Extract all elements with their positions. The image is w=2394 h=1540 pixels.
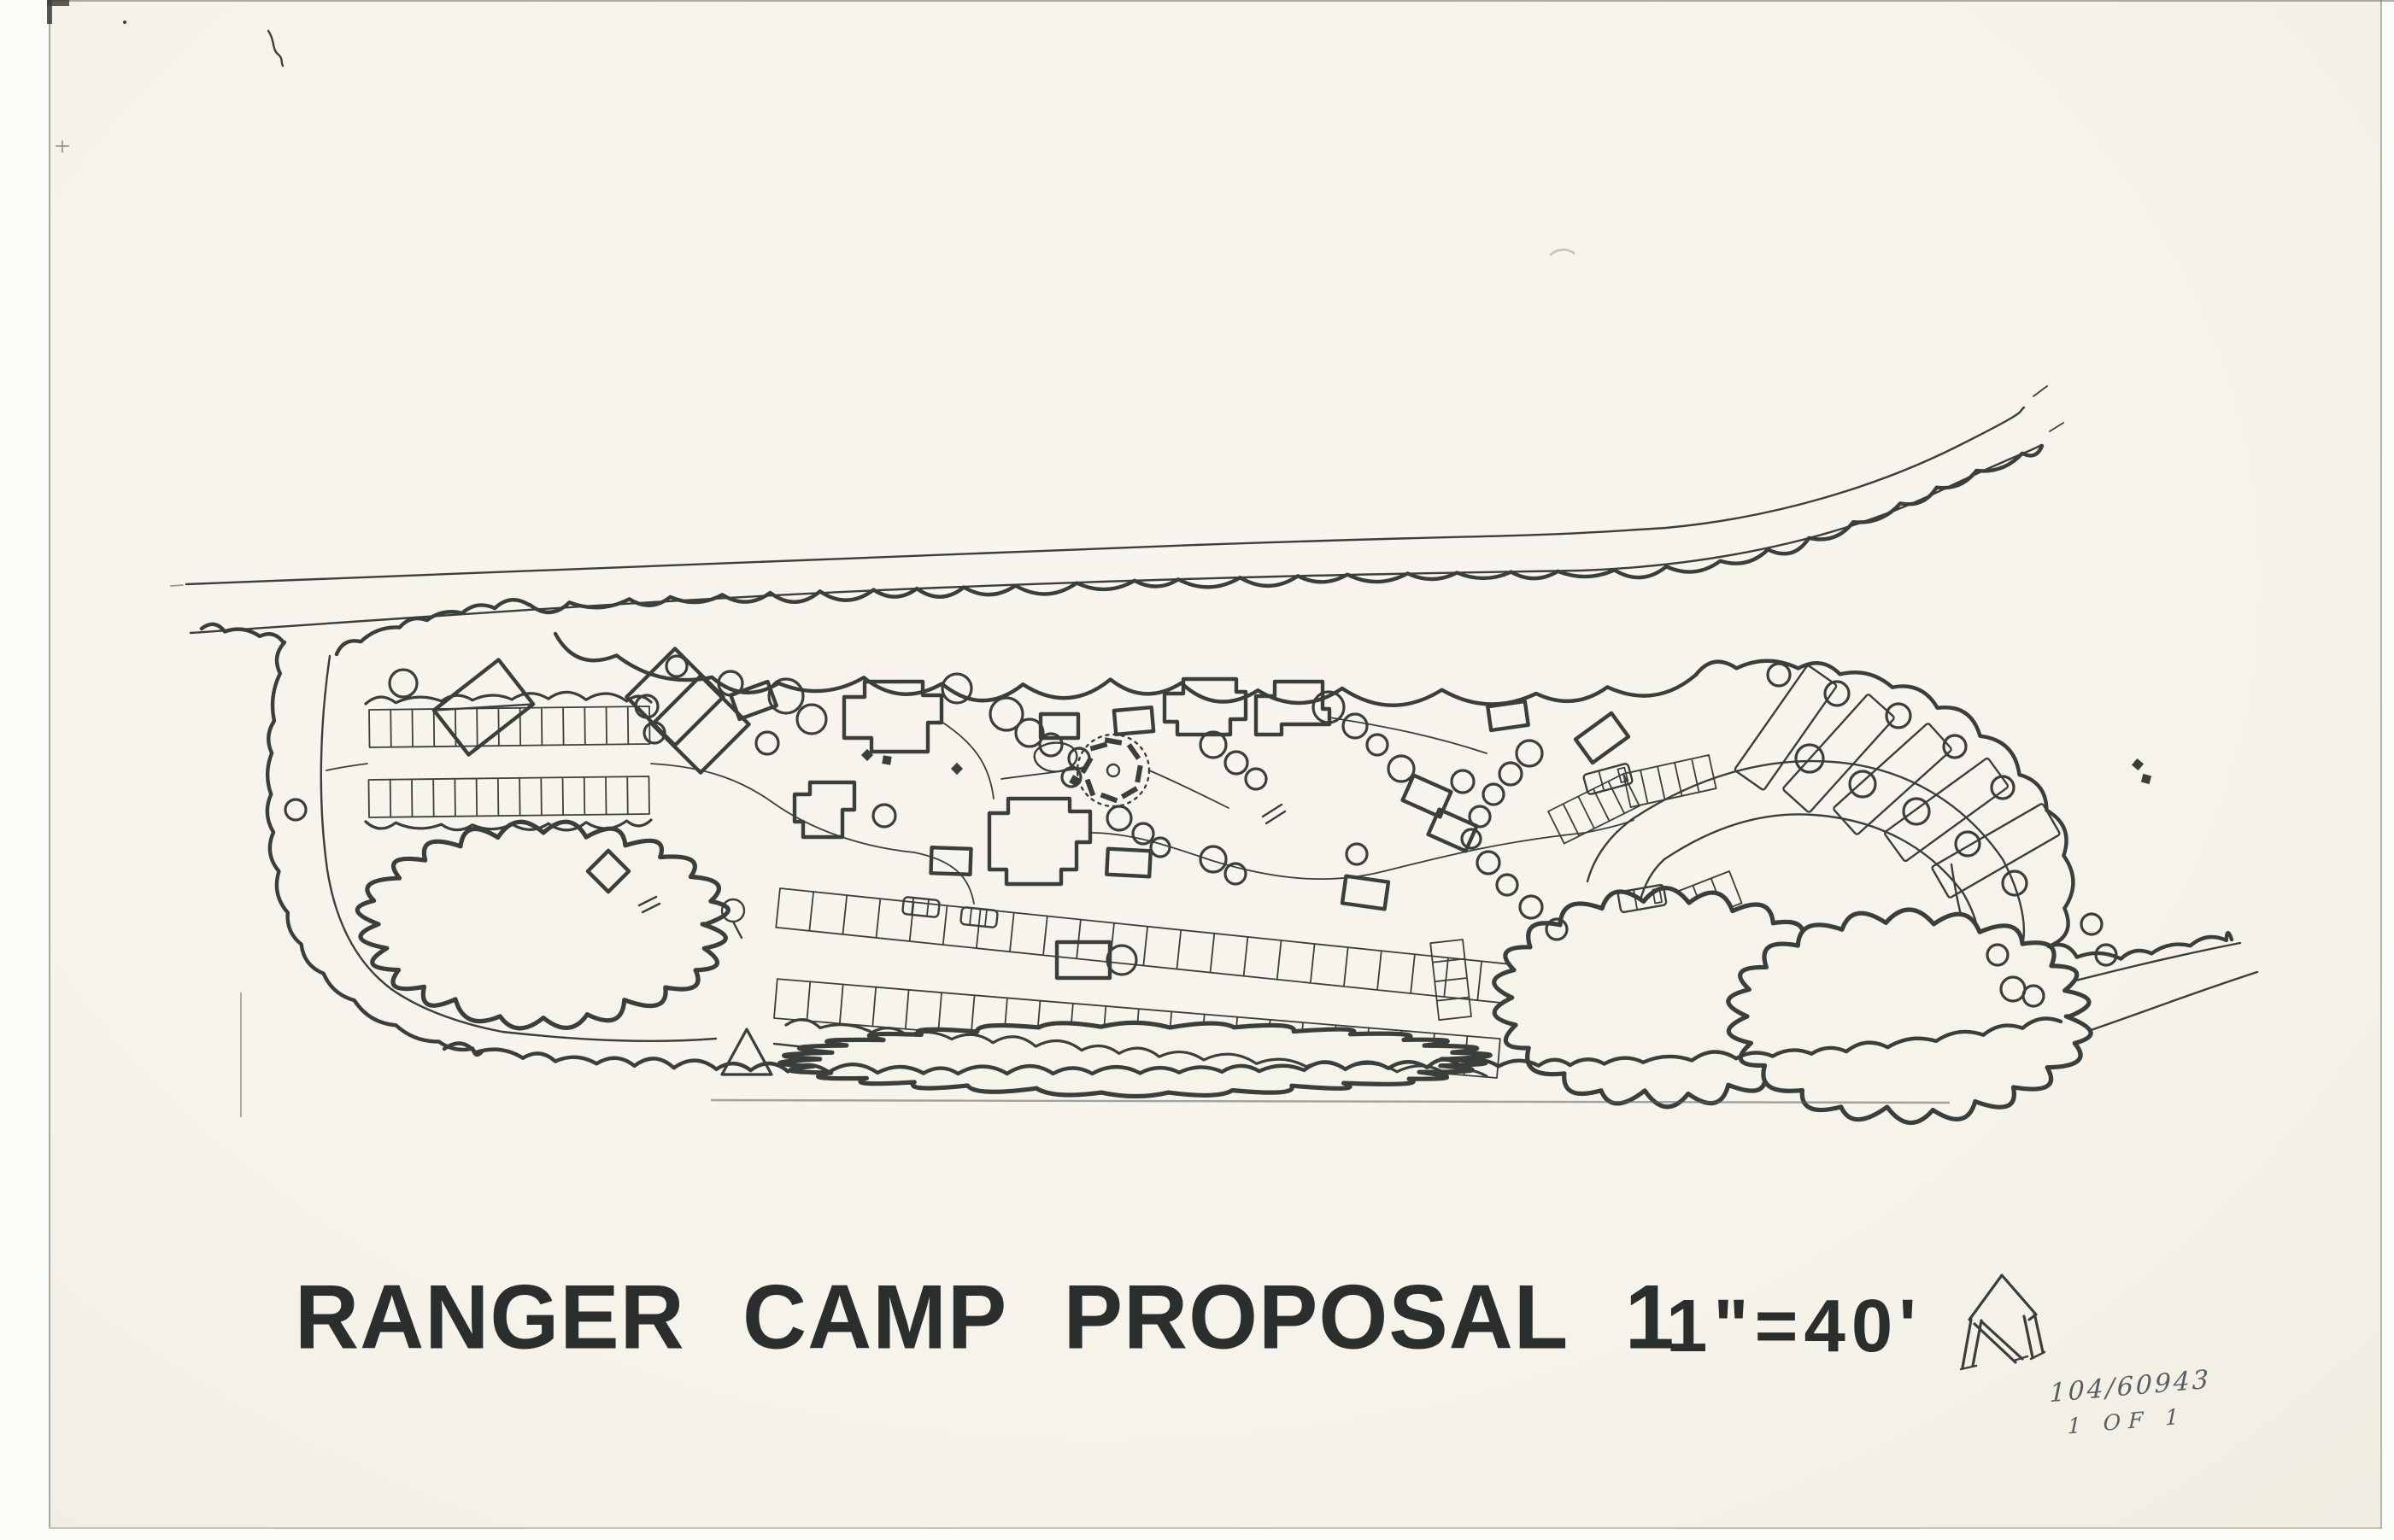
tree-icon	[1904, 799, 1929, 824]
main-road-dash	[2050, 423, 2063, 431]
tree-icon	[1483, 784, 1504, 805]
cabin	[1106, 849, 1151, 877]
title-block: RANGER CAMP PROPOSAL 1	[295, 1272, 1675, 1366]
tree-canopy	[202, 446, 2232, 1123]
tree-icon	[1517, 741, 1542, 766]
picnic-table-icon	[882, 755, 892, 765]
tree-icon	[1497, 875, 1517, 895]
tree-icon	[390, 670, 417, 697]
campfire-ring-icon	[1077, 735, 1149, 806]
picnic-table-icon	[2132, 758, 2144, 770]
page-title: RANGER CAMP PROPOSAL 1	[295, 1272, 1675, 1363]
vehicles	[902, 763, 1667, 928]
footpath	[942, 722, 994, 799]
tree-icon	[1956, 832, 1980, 856]
hall-building	[1256, 682, 1329, 735]
tree-icon	[1499, 763, 1522, 785]
bench-icon	[1263, 805, 1285, 823]
tree-icon	[1944, 735, 1966, 758]
tree-icon	[666, 656, 687, 676]
tree-icon	[756, 732, 778, 754]
cabin	[1487, 701, 1528, 730]
main-road-lower-edge	[191, 445, 2041, 633]
footpath	[1329, 717, 1487, 753]
cabin	[1342, 876, 1388, 910]
tree-icon	[1850, 771, 1875, 797]
upper-parking-south-band	[368, 776, 649, 817]
tree-icon	[2081, 914, 2102, 934]
tree-icon	[1477, 852, 1499, 874]
scale-label: 1"=40'	[1666, 1289, 1922, 1363]
site-furniture	[639, 735, 2151, 938]
picnic-table-icon	[951, 763, 963, 775]
tree-icon	[285, 799, 306, 820]
footpath	[326, 764, 367, 770]
cabin	[1114, 707, 1153, 735]
tree-icon	[1200, 846, 1226, 872]
canopy-edge-exit-road	[2049, 933, 2232, 958]
tree-icon	[1520, 896, 1542, 918]
pencil-smudge	[1550, 249, 1575, 255]
tree-icon	[1107, 806, 1131, 830]
tree-icon	[1246, 769, 1266, 789]
picnic-table-icon	[2141, 774, 2151, 784]
tree-icon	[1367, 735, 1388, 755]
canopy-mass-south-central	[780, 1022, 1491, 1096]
scanned-site-plan-sheet: RANGER CAMP PROPOSAL 1 1"=40' 104/60943 …	[0, 0, 2394, 1540]
tree-icon	[1062, 768, 1081, 787]
hall-building	[989, 799, 1090, 884]
cabin	[1575, 713, 1628, 763]
main-road-start-dots	[171, 585, 183, 586]
tree-icon	[1347, 844, 1367, 864]
tree-icon	[1452, 770, 1474, 793]
upper-parking-north-band	[369, 706, 650, 747]
tree-icon	[1886, 704, 1910, 728]
registration-mark	[56, 141, 68, 152]
tree-icon	[1133, 823, 1153, 844]
pen-squiggle-mark	[268, 31, 283, 66]
rv-spur	[1782, 694, 1895, 813]
canopy-edge-north	[530, 446, 2042, 612]
tree-icon	[1768, 664, 1790, 686]
tree-icon	[1470, 806, 1490, 827]
ink-dot-mark	[123, 20, 126, 24]
main-road-dash	[2033, 386, 2047, 396]
baseline-rule	[711, 1100, 1950, 1103]
rv-loop-stall-ladder	[1623, 755, 1716, 807]
car-icon	[902, 897, 940, 917]
washhouse-building	[795, 782, 854, 837]
tree-icon	[1225, 752, 1247, 774]
tree-icon	[1388, 756, 1414, 782]
tree-icon	[1343, 714, 1367, 738]
tree-icon	[873, 805, 895, 827]
north-arrow-icon	[1959, 1269, 2053, 1382]
footpath	[1149, 770, 1229, 808]
footpath	[914, 852, 974, 904]
canopy-edge-upper-lot-north	[366, 692, 651, 704]
tree-icon	[1151, 838, 1170, 857]
cabin	[930, 847, 971, 875]
canopy-mass-west	[357, 822, 728, 1028]
rv-loop-stall-ladder	[1430, 940, 1471, 1020]
canopy-edge-entrance-east	[337, 600, 529, 654]
tree-icon	[797, 705, 826, 734]
main-road-upper-edge	[186, 407, 2024, 584]
